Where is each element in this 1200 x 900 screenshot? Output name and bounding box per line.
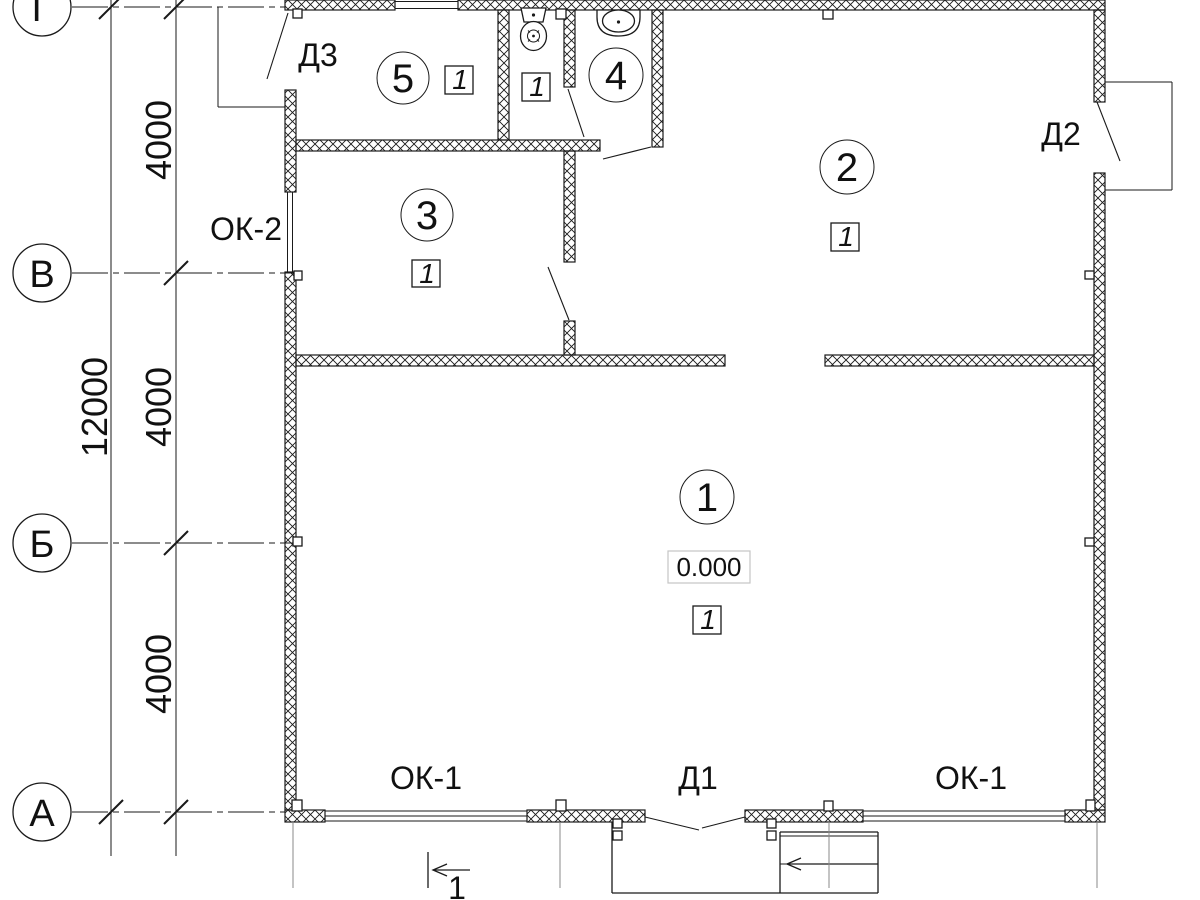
wall-segment: [564, 321, 575, 355]
wall-tie: [1086, 800, 1095, 811]
wall-tie: [293, 537, 302, 546]
doors: [218, 7, 1172, 830]
label-door-d1: Д1: [678, 760, 717, 796]
floor-type-room2: 1: [838, 221, 854, 252]
floor-type-wc: 1: [529, 71, 545, 102]
wall-segment: [1094, 173, 1105, 810]
wall-segment: [296, 355, 725, 366]
wall-segment: [825, 355, 1094, 366]
section-number: 1: [448, 870, 466, 900]
dim-segment-3: 4000: [138, 634, 179, 714]
wall-segment: [296, 140, 600, 151]
label-window-ok1-r: ОК-1: [935, 760, 1007, 796]
wall-tie: [556, 9, 566, 19]
sink-icon: [597, 10, 640, 36]
axis-label-v: В: [29, 254, 54, 296]
room-marks: 1 2 3 4 5 1 1 1 1 1 0.000: [377, 48, 874, 635]
wall-tie: [292, 800, 302, 811]
room-number-2: 2: [836, 146, 858, 190]
axis-label-b: Б: [30, 524, 55, 566]
wall-tie: [823, 10, 833, 19]
walls: [285, 0, 1105, 822]
room-number-5: 5: [392, 57, 414, 101]
section-mark: 1: [428, 852, 470, 900]
wall-segment: [285, 90, 296, 192]
wall-segment: [1094, 10, 1105, 102]
wall-segment: [564, 151, 575, 262]
elevation-value: 0.000: [676, 552, 741, 582]
dim-segment-1: 4000: [138, 100, 179, 180]
room-number-1: 1: [696, 476, 718, 520]
wall-segment: [745, 810, 863, 822]
dim-segment-2: 4000: [138, 367, 179, 447]
floor-type-room3: 1: [419, 258, 435, 289]
wall-tie: [293, 9, 302, 18]
column-grid: Г В Б А 12000 4000 4000 4000: [13, 0, 296, 856]
door-post-tie: [613, 831, 622, 840]
room-number-4: 4: [605, 54, 627, 98]
wall-tie: [1085, 538, 1094, 546]
wall-segment: [498, 10, 509, 140]
door-post-tie: [767, 831, 776, 840]
wall-ties: [292, 9, 1095, 840]
door-post-tie: [767, 819, 776, 828]
floor-plan-drawing: Г В Б А 12000 4000 4000 4000: [0, 0, 1200, 900]
door-wc-swing: [568, 89, 584, 137]
room-number-3: 3: [416, 194, 438, 238]
dim-overall: 12000: [74, 357, 115, 457]
label-window-ok2: ОК-2: [210, 211, 282, 247]
floor-type-room5: 1: [452, 64, 468, 95]
wall-segment: [1065, 810, 1105, 822]
door-room4-swing: [603, 147, 651, 159]
fixtures: [521, 8, 641, 51]
wall-tie: [824, 801, 833, 811]
axis-label-g: Г: [32, 0, 53, 30]
wall-segment: [564, 10, 575, 87]
door-d3: [218, 7, 288, 107]
label-window-ok1-l: ОК-1: [390, 760, 462, 796]
wall-tie: [294, 271, 302, 280]
window-top: [395, 0, 458, 10]
extension-lines: [293, 822, 1097, 888]
window-ok2: [285, 192, 296, 272]
wall-segment: [285, 810, 325, 822]
toilet-icon: [521, 8, 547, 51]
door-post-tie: [613, 819, 622, 828]
door-room3-swing: [548, 267, 569, 320]
label-door-d3: Д3: [298, 37, 337, 73]
window-ok1-left: [325, 810, 527, 822]
wall-tie: [1085, 271, 1094, 279]
label-door-d2: Д2: [1041, 116, 1080, 152]
floor-plan-sheet: Г В Б А 12000 4000 4000 4000: [0, 0, 1200, 900]
entry-porch-stairs: [612, 822, 878, 893]
door-d1-double: [645, 817, 745, 830]
windows: [285, 0, 1065, 822]
floor-type-room1: 1: [700, 604, 716, 635]
window-ok1-right: [863, 810, 1065, 822]
axis-label-a: А: [29, 793, 55, 835]
wall-segment: [458, 0, 1105, 10]
wall-segment: [652, 10, 663, 147]
door-d2: [1097, 82, 1172, 190]
wall-tie: [556, 800, 566, 811]
wall-segment: [527, 810, 645, 822]
